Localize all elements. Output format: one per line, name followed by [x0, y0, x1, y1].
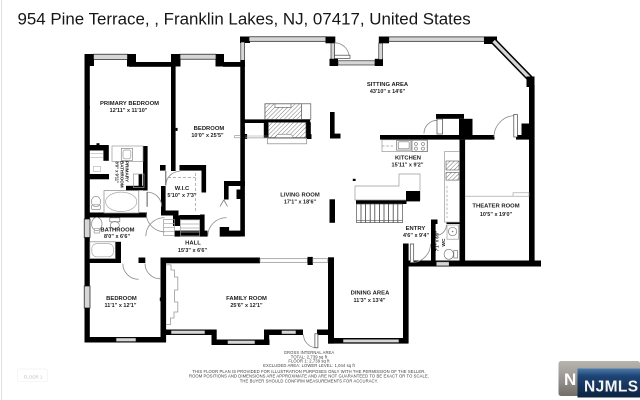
svg-text:EXCLUDED AREA: LOWER LEVEL: 1,: EXCLUDED AREA: LOWER LEVEL: 1,044 sq ft: [263, 363, 356, 368]
svg-text:W.I.C: W.I.C: [175, 186, 190, 192]
svg-text:7'1" x 6'0": 7'1" x 6'0": [435, 231, 440, 251]
svg-text:17'1" x 18'6": 17'1" x 18'6": [284, 200, 317, 206]
svg-text:11'3" x 13'4": 11'3" x 13'4": [354, 298, 386, 304]
svg-text:10'0" x 25'5": 10'0" x 25'5": [191, 133, 224, 139]
svg-text:5'10" x 7'3": 5'10" x 7'3": [167, 193, 197, 199]
svg-text:BEDROOM: BEDROOM: [106, 296, 137, 302]
svg-text:THE BUYER SHOULD CONFIRM MEASU: THE BUYER SHOULD CONFIRM MEASUREMENTS FO…: [240, 378, 378, 383]
svg-text:KITCHEN: KITCHEN: [395, 156, 421, 162]
svg-text:N: N: [564, 370, 576, 389]
svg-text:WC: WC: [441, 238, 447, 247]
svg-text:NJMLS: NJMLS: [584, 379, 639, 396]
svg-text:BATHROOM: BATHROOM: [100, 228, 134, 234]
svg-text:HALL: HALL: [185, 241, 201, 247]
svg-text:ENTRY: ENTRY: [406, 226, 426, 232]
svg-text:25'6" x 12'1": 25'6" x 12'1": [230, 303, 263, 309]
svg-text:15'3" x 6'6": 15'3" x 6'6": [178, 248, 208, 254]
svg-text:8'0" x 6'6": 8'0" x 6'6": [104, 234, 131, 240]
svg-text:BEDROOM: BEDROOM: [194, 126, 225, 132]
svg-text:FLOOR 1: FLOOR 1: [24, 375, 43, 380]
svg-text:FAMILY ROOM: FAMILY ROOM: [226, 296, 267, 302]
svg-text:DINING AREA: DINING AREA: [351, 291, 390, 297]
svg-text:LIVING ROOM: LIVING ROOM: [280, 193, 320, 199]
svg-text:SITTING AREA: SITTING AREA: [367, 82, 409, 88]
svg-text:8'0" x 9'11": 8'0" x 9'11": [114, 162, 119, 184]
svg-text:THEATER ROOM: THEATER ROOM: [472, 204, 519, 210]
svg-text:15'11" x 9'2": 15'11" x 9'2": [392, 163, 424, 169]
svg-text:11'1" x 12'1": 11'1" x 12'1": [105, 303, 137, 309]
svg-text:43'10" x 14'6": 43'10" x 14'6": [370, 89, 406, 95]
svg-text:954 Pine Terrace, , Franklin L: 954 Pine Terrace, , Franklin Lakes, NJ, …: [18, 10, 471, 29]
svg-text:4'6" x 9'4": 4'6" x 9'4": [403, 233, 430, 239]
svg-text:PRIMARY BEDROOM: PRIMARY BEDROOM: [100, 101, 159, 107]
svg-text:12'11" x 11'10": 12'11" x 11'10": [110, 108, 148, 114]
svg-text:10'5" x 19'0": 10'5" x 19'0": [480, 212, 513, 218]
